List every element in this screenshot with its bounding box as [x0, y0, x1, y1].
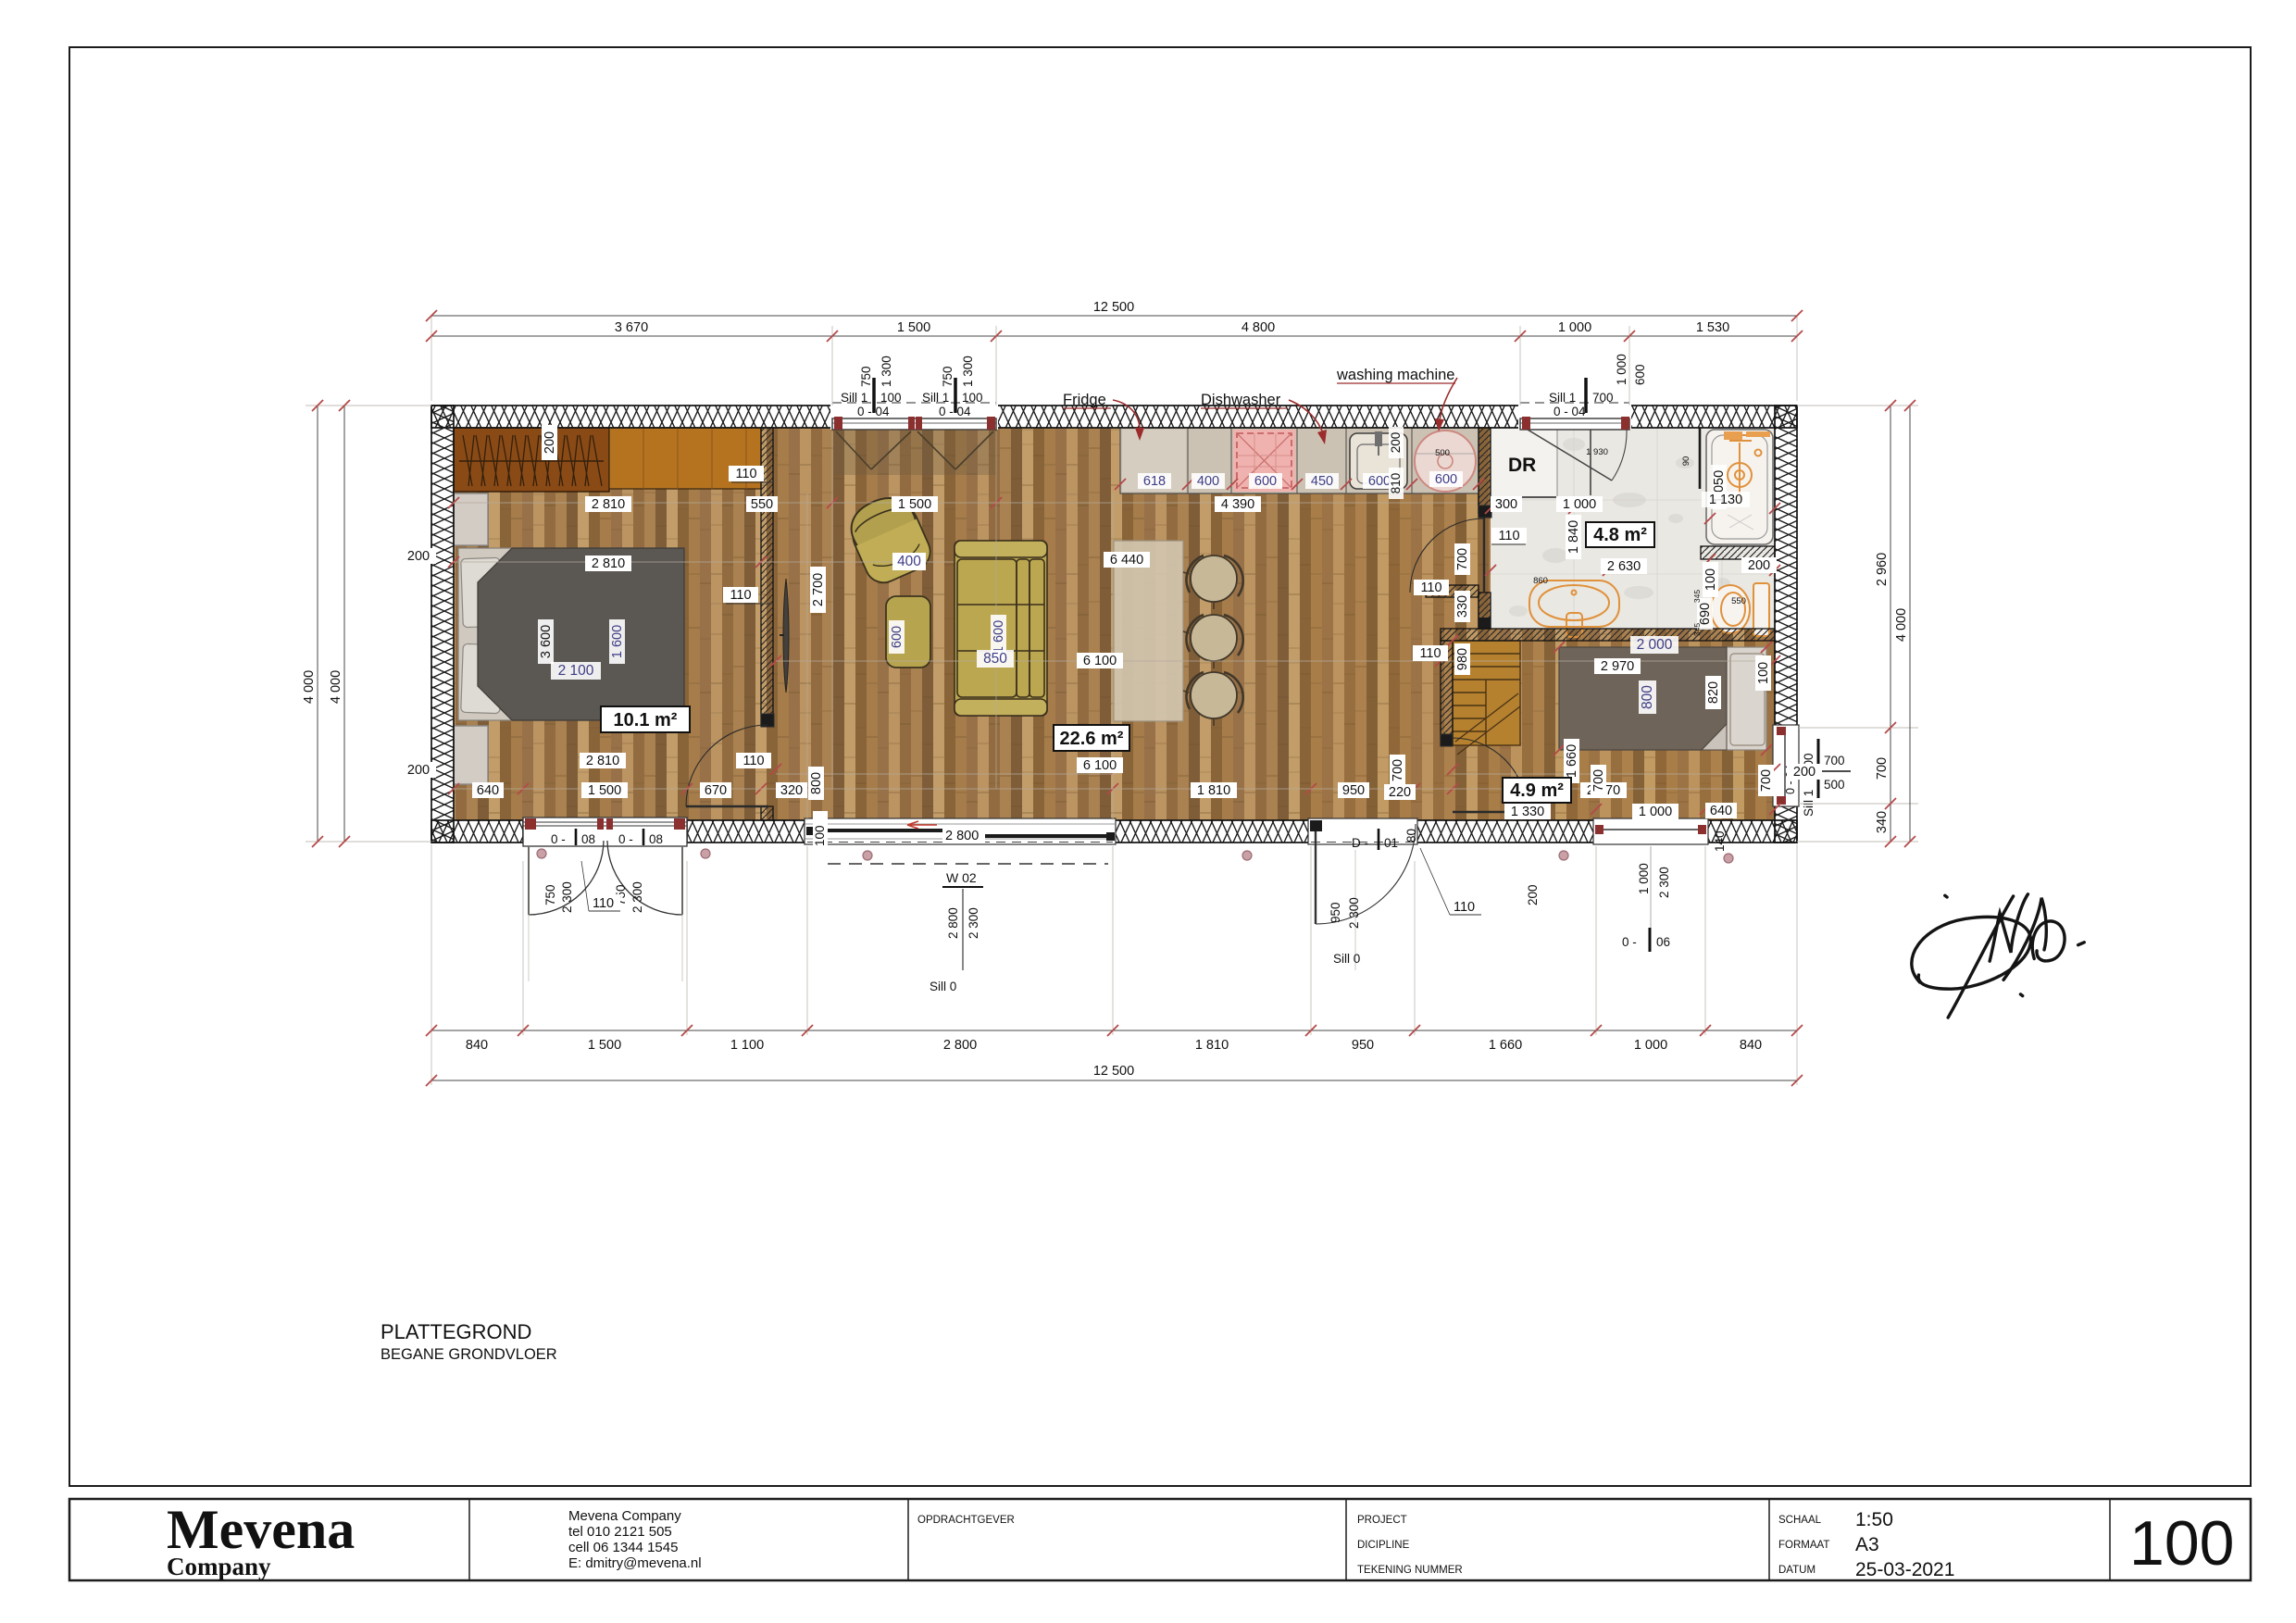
svg-text:600: 600 — [1633, 364, 1647, 385]
svg-text:1 500: 1 500 — [897, 320, 930, 335]
svg-text:840: 840 — [466, 1038, 488, 1053]
svg-text:345: 345 — [1692, 623, 1702, 636]
svg-text:08: 08 — [581, 832, 595, 846]
svg-text:320: 320 — [780, 783, 803, 798]
svg-text:6 100: 6 100 — [1083, 758, 1117, 773]
svg-text:1 000: 1 000 — [1563, 497, 1596, 512]
svg-text:100: 100 — [2129, 1508, 2234, 1579]
svg-text:100: 100 — [962, 391, 983, 405]
svg-text:1 130: 1 130 — [1709, 493, 1742, 507]
svg-text:22.6 m²: 22.6 m² — [1060, 729, 1124, 749]
svg-text:Sill 1: Sill 1 — [841, 391, 867, 405]
svg-text:DATUM: DATUM — [1778, 1565, 1816, 1576]
svg-text:1 810: 1 810 — [1195, 1038, 1229, 1053]
svg-text:2 300: 2 300 — [967, 907, 980, 939]
svg-text:2 700: 2 700 — [811, 573, 826, 606]
svg-text:1 660: 1 660 — [1565, 744, 1579, 778]
svg-text:2 800: 2 800 — [943, 1038, 977, 1053]
svg-text:06: 06 — [1656, 935, 1670, 949]
svg-text:500: 500 — [1435, 448, 1450, 458]
svg-text:3 670: 3 670 — [615, 320, 648, 335]
svg-text:110: 110 — [742, 754, 764, 768]
svg-text:2 800: 2 800 — [946, 907, 960, 939]
svg-text:2 300: 2 300 — [1657, 867, 1671, 898]
svg-text:1 000: 1 000 — [1634, 1038, 1667, 1053]
svg-text:640: 640 — [1710, 804, 1732, 818]
svg-text:DR: DR — [1508, 455, 1536, 476]
svg-text:800: 800 — [809, 772, 824, 794]
svg-text:OPDRACHTGEVER: OPDRACHTGEVER — [917, 1515, 1015, 1526]
svg-text:2 970: 2 970 — [1601, 659, 1634, 674]
svg-text:cell 06 1344 1545: cell 06 1344 1545 — [568, 1540, 678, 1555]
svg-text:6 440: 6 440 — [1110, 553, 1143, 568]
svg-text:1 330: 1 330 — [1511, 805, 1544, 819]
svg-text:550: 550 — [1731, 596, 1746, 606]
svg-text:820: 820 — [1706, 681, 1721, 704]
svg-text:2 100: 2 100 — [558, 663, 594, 679]
svg-text:Company: Company — [167, 1553, 271, 1580]
svg-text:340: 340 — [1875, 811, 1890, 833]
svg-text:10.1 m²: 10.1 m² — [614, 710, 678, 730]
svg-text:110: 110 — [735, 467, 756, 481]
svg-text:Dishwasher: Dishwasher — [1201, 392, 1281, 408]
svg-text:Sill 0: Sill 0 — [1333, 952, 1360, 966]
svg-text:840: 840 — [1740, 1038, 1762, 1053]
svg-text:618: 618 — [1143, 474, 1166, 489]
svg-text:1 810: 1 810 — [1197, 783, 1230, 798]
svg-text:08: 08 — [649, 832, 663, 846]
svg-text:2 810: 2 810 — [586, 754, 619, 768]
svg-text:W 02: W 02 — [946, 870, 977, 885]
svg-text:4 800: 4 800 — [1242, 320, 1275, 335]
svg-text:200: 200 — [407, 763, 430, 778]
svg-text:200: 200 — [1389, 432, 1403, 454]
svg-text:A3: A3 — [1855, 1534, 1879, 1555]
svg-text:800: 800 — [1640, 685, 1655, 709]
svg-text:700: 700 — [1759, 769, 1774, 792]
svg-text:2 800: 2 800 — [945, 829, 979, 843]
svg-text:850: 850 — [983, 651, 1007, 667]
svg-text:200: 200 — [543, 431, 557, 454]
svg-text:1:50: 1:50 — [1855, 1509, 1893, 1530]
svg-text:600: 600 — [1368, 474, 1391, 489]
svg-text:BEGANE GRONDVLOER: BEGANE GRONDVLOER — [381, 1346, 557, 1363]
svg-text:6 100: 6 100 — [1083, 654, 1117, 668]
svg-text:980: 980 — [1455, 648, 1470, 670]
svg-text:670: 670 — [705, 783, 727, 798]
svg-text:750: 750 — [859, 366, 873, 387]
svg-text:2 810: 2 810 — [592, 556, 625, 571]
svg-text:110: 110 — [1498, 529, 1519, 543]
svg-text:1 660: 1 660 — [1489, 1038, 1522, 1053]
svg-text:1 500: 1 500 — [588, 783, 621, 798]
svg-text:washing machine: washing machine — [1336, 367, 1455, 383]
svg-text:810: 810 — [1389, 473, 1403, 494]
svg-text:0 -: 0 - — [618, 832, 633, 846]
svg-text:400: 400 — [1197, 474, 1219, 489]
svg-text:80: 80 — [1404, 829, 1418, 843]
svg-text:750: 750 — [941, 366, 955, 387]
svg-text:1 000: 1 000 — [1639, 805, 1672, 819]
svg-text:700: 700 — [1591, 769, 1606, 792]
svg-text:4 390: 4 390 — [1221, 497, 1254, 512]
svg-text:0 - 04: 0 - 04 — [1554, 405, 1586, 418]
svg-text:1 500: 1 500 — [898, 497, 931, 512]
svg-text:E: dmitry@mevena.nl: E: dmitry@mevena.nl — [568, 1555, 702, 1571]
svg-text:Sill 0: Sill 0 — [930, 980, 956, 993]
svg-text:2 000: 2 000 — [1637, 637, 1673, 653]
svg-text:2 960: 2 960 — [1875, 553, 1890, 586]
svg-text:860: 860 — [1533, 576, 1548, 586]
svg-text:110: 110 — [730, 588, 751, 603]
svg-text:1 530: 1 530 — [1696, 320, 1729, 335]
svg-text:700: 700 — [1824, 754, 1845, 768]
svg-text:Mevena: Mevena — [167, 1499, 355, 1560]
svg-text:110: 110 — [1420, 581, 1441, 595]
svg-text:Mevena Company: Mevena Company — [568, 1508, 681, 1524]
svg-text:2 630: 2 630 — [1607, 559, 1641, 574]
svg-text:1 930: 1 930 — [1586, 447, 1608, 457]
svg-text:950: 950 — [1342, 783, 1365, 798]
svg-text:600: 600 — [1254, 474, 1277, 489]
svg-text:12 500: 12 500 — [1093, 1064, 1134, 1079]
svg-text:1 600: 1 600 — [610, 625, 625, 658]
svg-text:1 300: 1 300 — [961, 356, 975, 387]
svg-text:600: 600 — [890, 626, 905, 648]
svg-text:400: 400 — [897, 554, 921, 569]
svg-text:300: 300 — [1495, 497, 1517, 512]
svg-text:90: 90 — [1681, 456, 1691, 467]
svg-text:700: 700 — [1391, 759, 1405, 781]
svg-text:4.9 m²: 4.9 m² — [1510, 780, 1564, 801]
svg-text:2 300: 2 300 — [560, 881, 574, 913]
svg-text:SCHAAL: SCHAAL — [1778, 1515, 1822, 1526]
svg-text:200: 200 — [1526, 884, 1540, 905]
svg-text:950: 950 — [1352, 1038, 1374, 1053]
svg-text:4 000: 4 000 — [1894, 608, 1909, 642]
svg-text:1 500: 1 500 — [588, 1038, 621, 1053]
svg-text:4.8 m²: 4.8 m² — [1593, 525, 1647, 545]
svg-text:PLATTEGROND: PLATTEGROND — [381, 1320, 531, 1343]
svg-text:750: 750 — [543, 884, 557, 905]
svg-text:12 500: 12 500 — [1093, 300, 1134, 315]
svg-text:Fridge: Fridge — [1063, 392, 1106, 408]
svg-text:700: 700 — [1455, 548, 1470, 570]
svg-text:3 600: 3 600 — [539, 625, 554, 658]
svg-text:330: 330 — [1455, 595, 1470, 618]
svg-text:4 000: 4 000 — [329, 670, 343, 704]
svg-text:Sill 1: Sill 1 — [1549, 391, 1576, 405]
svg-text:Sill 1: Sill 1 — [1802, 790, 1816, 817]
svg-text:1 100: 1 100 — [730, 1038, 764, 1053]
svg-text:25-03-2021: 25-03-2021 — [1855, 1559, 1954, 1580]
svg-text:200: 200 — [1793, 765, 1816, 780]
svg-text:950: 950 — [1329, 902, 1342, 923]
svg-text:100: 100 — [1703, 568, 1718, 591]
svg-text:110: 110 — [593, 896, 614, 911]
svg-text:0 -: 0 - — [1622, 935, 1637, 949]
svg-text:100: 100 — [1756, 662, 1771, 684]
svg-text:600: 600 — [1435, 472, 1457, 487]
svg-text:D -: D - — [1352, 836, 1368, 850]
svg-text:200: 200 — [407, 549, 430, 564]
svg-text:140: 140 — [1713, 830, 1727, 852]
svg-text:Sill 1: Sill 1 — [922, 391, 949, 405]
svg-text:PROJECT: PROJECT — [1357, 1515, 1407, 1526]
svg-text:690: 690 — [1698, 603, 1713, 625]
svg-text:110: 110 — [1419, 646, 1441, 661]
svg-text:550: 550 — [751, 497, 773, 512]
svg-text:1 000: 1 000 — [1615, 354, 1628, 385]
svg-text:700: 700 — [1875, 757, 1890, 780]
svg-text:DICIPLINE: DICIPLINE — [1357, 1540, 1410, 1551]
svg-text:1 000: 1 000 — [1558, 320, 1591, 335]
svg-text:2 810: 2 810 — [592, 497, 625, 512]
svg-text:FORMAAT: FORMAAT — [1778, 1540, 1829, 1551]
svg-text:110: 110 — [1454, 900, 1475, 915]
svg-text:4 000: 4 000 — [302, 670, 317, 704]
svg-text:01: 01 — [1384, 836, 1398, 850]
svg-text:1 600: 1 600 — [992, 620, 1006, 654]
svg-text:200: 200 — [1748, 558, 1770, 573]
svg-text:100: 100 — [880, 391, 902, 405]
svg-text:2 300: 2 300 — [630, 881, 644, 913]
svg-text:2 300: 2 300 — [1347, 897, 1361, 929]
svg-text:TEKENING NUMMER: TEKENING NUMMER — [1357, 1565, 1463, 1576]
svg-text:tel 010 2121 505: tel 010 2121 505 — [568, 1524, 672, 1540]
svg-text:345: 345 — [1692, 590, 1702, 603]
svg-text:1 300: 1 300 — [880, 356, 893, 387]
svg-text:100: 100 — [813, 825, 827, 846]
svg-text:220: 220 — [1389, 785, 1411, 800]
svg-text:500: 500 — [1824, 778, 1845, 792]
svg-text:1 840: 1 840 — [1566, 520, 1581, 554]
svg-text:0 -: 0 - — [551, 832, 566, 846]
svg-text:640: 640 — [477, 783, 499, 798]
svg-text:700: 700 — [1592, 391, 1614, 405]
svg-text:450: 450 — [1311, 474, 1333, 489]
svg-text:1 000: 1 000 — [1637, 863, 1651, 894]
